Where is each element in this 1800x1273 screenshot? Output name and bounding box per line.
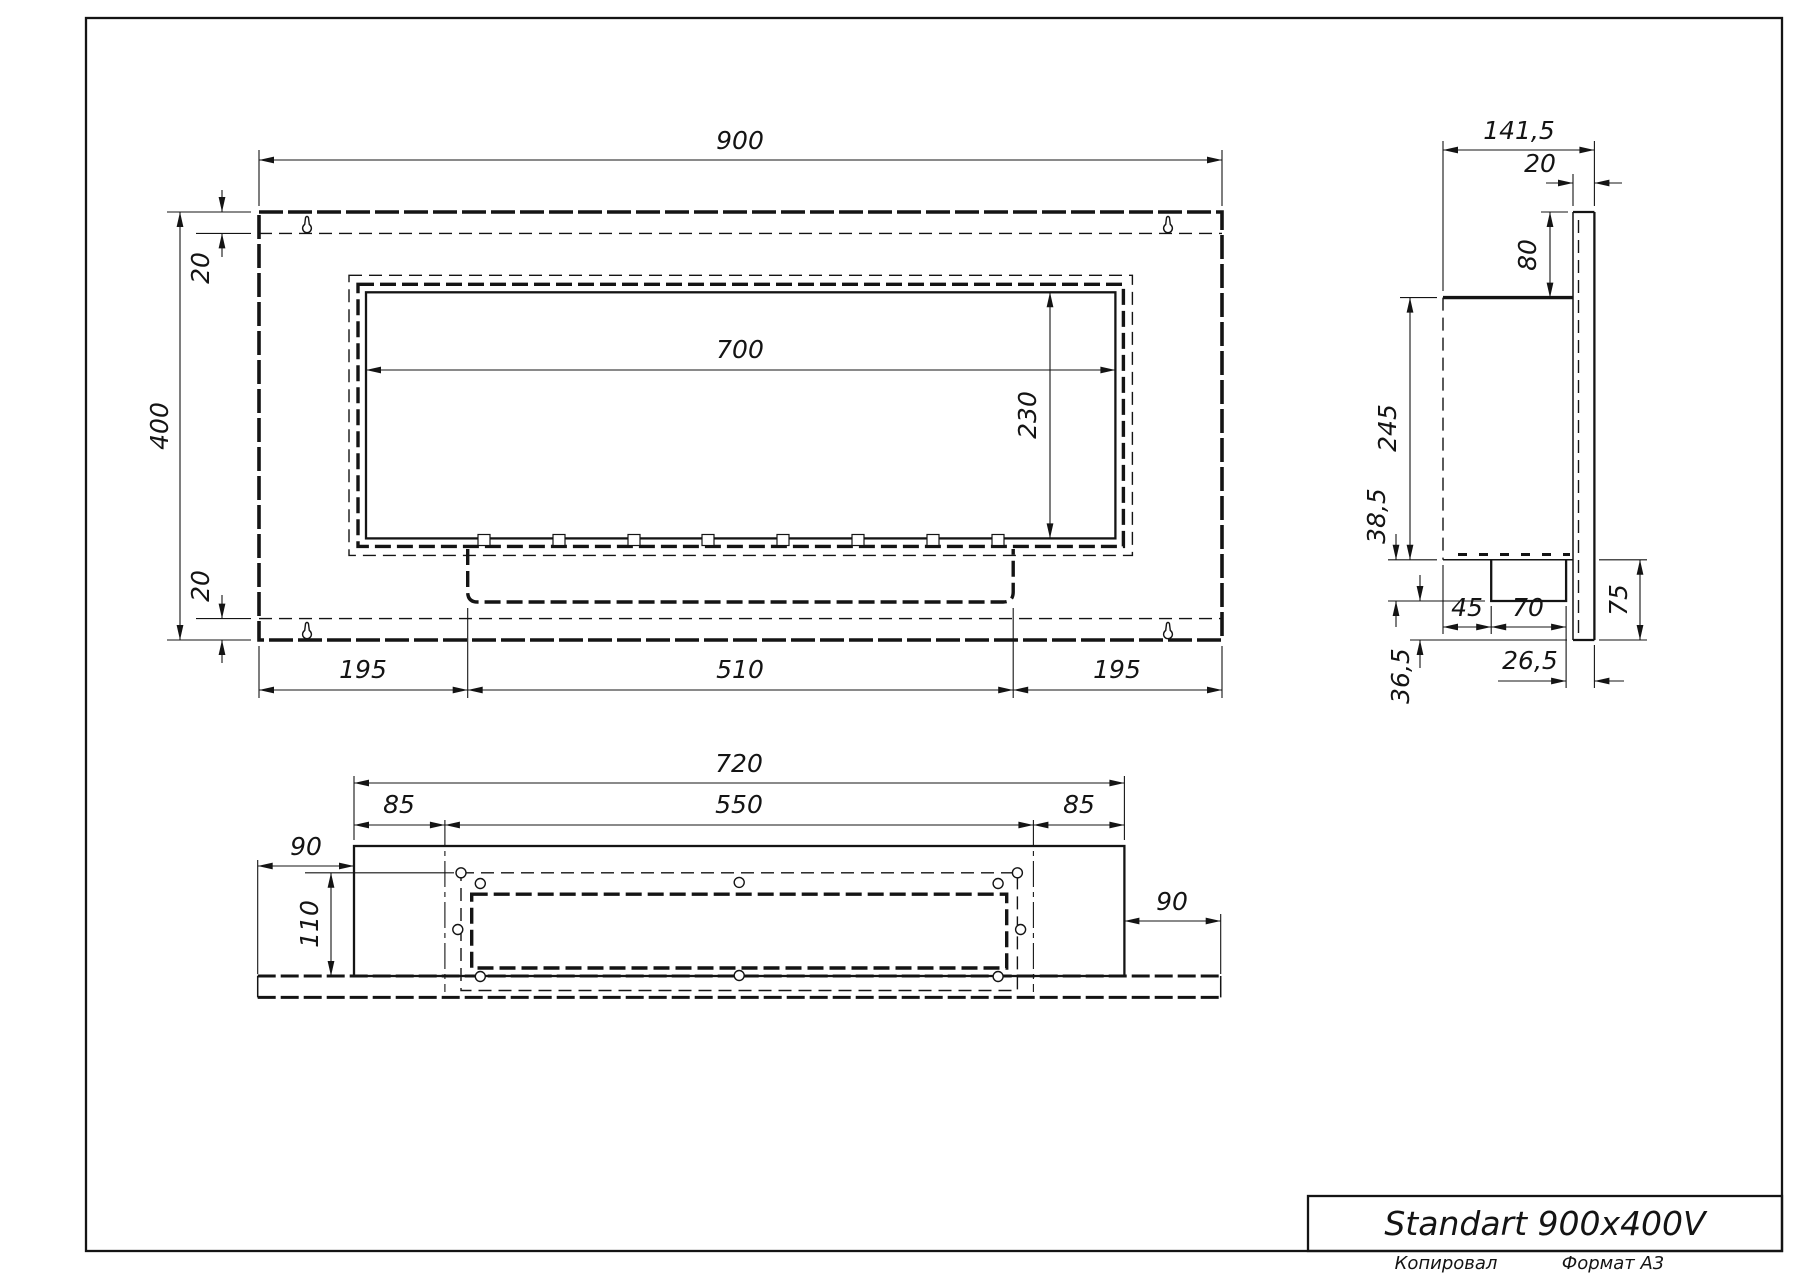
dim-cutout-left-inset: 85 (383, 790, 415, 819)
dim-tray-width: 70 (1512, 593, 1544, 622)
drawing-title: Standart 900x400V (1384, 1204, 1708, 1243)
dim-bottom-width: 720 (715, 749, 763, 778)
bottom-view-dimensions: 720 85 550 85 90 110 90 (258, 749, 1221, 976)
side-wall-panel (1573, 212, 1594, 640)
opening (366, 292, 1115, 538)
bottom-cutout (472, 894, 1007, 968)
dim-front-top-offset: 20 (186, 252, 215, 284)
dim-cutout-depth: 110 (295, 900, 324, 948)
keyhole-slot-icon (303, 623, 312, 639)
dim-body-height: 245 (1373, 404, 1402, 452)
dim-tray-front-offset: 45 (1451, 593, 1483, 622)
dim-panel-below-body: 75 (1604, 584, 1633, 616)
dim-opening-width: 700 (716, 335, 764, 364)
hidden-burner-tray (468, 549, 1014, 602)
dim-bottom-gap: 36,5 (1386, 648, 1415, 704)
dim-cutout-width: 550 (715, 790, 763, 819)
dim-tray-back-gap: 26,5 (1502, 646, 1558, 675)
front-outer-plate (259, 212, 1222, 640)
drawing-sheet: 900 400 20 20 700 230 (0, 0, 1800, 1273)
dim-plate-left-overhang: 90 (290, 832, 322, 861)
dim-front-bottom-left: 195 (339, 655, 387, 684)
side-view-dimensions: 141,5 20 80 245 38,5 36,5 (1362, 116, 1647, 704)
format-label: Формат А3 (1562, 1253, 1665, 1273)
title-block: Standart 900x400V Копировал Формат А3 (1308, 1196, 1782, 1273)
opening-hidden-frame (358, 284, 1123, 546)
bottom-box (354, 846, 1124, 976)
burner-rail-tabs (478, 535, 1004, 546)
front-view: 900 400 20 20 700 230 (145, 126, 1222, 698)
keyhole-slot-icon (303, 217, 312, 233)
bottom-view: 720 85 550 85 90 110 90 (258, 749, 1221, 997)
technical-drawing: 900 400 20 20 700 230 (0, 0, 1800, 1273)
dim-top-drop: 80 (1513, 239, 1542, 271)
screw-holes (453, 868, 1026, 982)
dim-side-depth: 141,5 (1483, 116, 1555, 145)
dim-panel-thickness: 20 (1524, 149, 1556, 178)
dim-cutout-right-inset: 85 (1063, 790, 1095, 819)
dim-front-bottom-offset: 20 (186, 570, 215, 602)
keyhole-slot-icon (1164, 217, 1173, 233)
copied-by-label: Копировал (1395, 1253, 1498, 1273)
side-firebox-body (1443, 298, 1573, 560)
dim-opening-height: 230 (1013, 391, 1042, 439)
keyhole-slot-icon (1164, 623, 1173, 639)
dim-plate-right-overhang: 90 (1156, 887, 1188, 916)
side-view: 141,5 20 80 245 38,5 36,5 (1362, 116, 1647, 704)
dim-front-height: 400 (145, 402, 174, 450)
dim-front-bottom-right: 195 (1093, 655, 1141, 684)
dim-front-width: 900 (716, 126, 764, 155)
dim-tray-depth: 38,5 (1362, 488, 1391, 544)
dim-front-bottom-center: 510 (716, 655, 764, 684)
drawing-frame (86, 18, 1782, 1251)
